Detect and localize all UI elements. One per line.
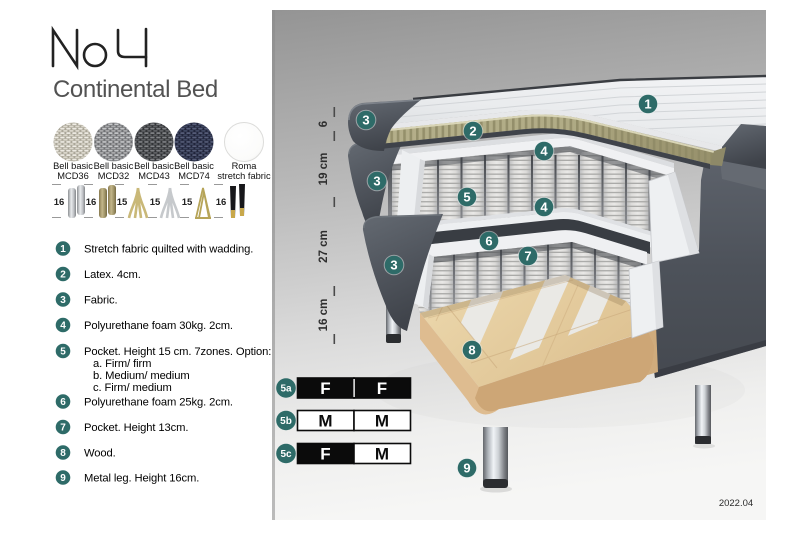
- svg-text:stretch fabric: stretch fabric: [217, 171, 271, 181]
- svg-text:Polyurethane foam 25kg. 2cm.: Polyurethane foam 25kg. 2cm.: [84, 397, 233, 409]
- svg-text:2: 2: [469, 124, 476, 139]
- svg-text:MCD74: MCD74: [178, 171, 210, 181]
- svg-text:5: 5: [463, 190, 470, 205]
- svg-text:9: 9: [463, 461, 470, 476]
- svg-text:M: M: [375, 445, 389, 464]
- svg-text:Metal leg. Height 16cm.: Metal leg. Height 16cm.: [84, 473, 199, 485]
- svg-text:Bell basic: Bell basic: [53, 161, 93, 171]
- svg-text:6: 6: [485, 234, 492, 249]
- svg-text:7: 7: [60, 423, 66, 434]
- svg-text:16: 16: [216, 197, 227, 208]
- svg-text:3: 3: [60, 295, 66, 306]
- svg-text:MCD32: MCD32: [98, 171, 130, 181]
- svg-text:1: 1: [644, 97, 651, 112]
- svg-text:9: 9: [60, 473, 66, 484]
- svg-text:c. Firm/ medium: c. Firm/ medium: [93, 382, 172, 394]
- svg-text:1: 1: [60, 244, 66, 255]
- svg-text:b. Medium/ medium: b. Medium/ medium: [93, 370, 190, 382]
- svg-text:MCD43: MCD43: [138, 171, 170, 181]
- svg-text:5a: 5a: [280, 384, 292, 395]
- svg-text:16: 16: [86, 197, 97, 208]
- svg-text:Pocket. Height 15 cm. 7zones.: Pocket. Height 15 cm. 7zones. Option:: [84, 346, 271, 358]
- svg-text:MCD36: MCD36: [57, 171, 89, 181]
- svg-text:4: 4: [540, 200, 548, 215]
- svg-text:4: 4: [60, 321, 66, 332]
- svg-text:2: 2: [60, 270, 66, 281]
- svg-text:5b: 5b: [280, 416, 292, 427]
- svg-text:4: 4: [540, 144, 548, 159]
- svg-text:5: 5: [60, 347, 66, 358]
- svg-text:Latex. 4cm.: Latex. 4cm.: [84, 269, 141, 281]
- svg-text:7: 7: [524, 249, 531, 264]
- svg-text:15: 15: [182, 197, 193, 208]
- svg-text:F: F: [377, 379, 387, 398]
- svg-text:27 cm: 27 cm: [318, 230, 330, 263]
- svg-text:8: 8: [468, 343, 475, 358]
- svg-text:M: M: [318, 412, 332, 431]
- svg-text:15: 15: [117, 197, 128, 208]
- svg-text:M: M: [375, 412, 389, 431]
- svg-text:3: 3: [362, 113, 369, 128]
- svg-text:Fabric.: Fabric.: [84, 295, 118, 307]
- svg-text:16 cm: 16 cm: [318, 299, 330, 332]
- svg-text:Bell basic: Bell basic: [174, 161, 214, 171]
- svg-text:6: 6: [318, 121, 330, 127]
- svg-text:Pocket. Height 13cm.: Pocket. Height 13cm.: [84, 422, 188, 434]
- svg-text:15: 15: [150, 197, 161, 208]
- svg-text:Wood.: Wood.: [84, 448, 116, 460]
- svg-text:8: 8: [60, 448, 66, 459]
- svg-text:Roma: Roma: [232, 161, 258, 171]
- svg-text:Bell basic: Bell basic: [94, 161, 134, 171]
- svg-text:3: 3: [373, 174, 380, 189]
- svg-text:19 cm: 19 cm: [318, 153, 330, 186]
- svg-text:16: 16: [54, 197, 65, 208]
- svg-text:F: F: [320, 379, 330, 398]
- svg-text:5c: 5c: [280, 449, 292, 460]
- svg-text:Polyurethane foam 30kg. 2cm.: Polyurethane foam 30kg. 2cm.: [84, 320, 233, 332]
- svg-text:a. Firm/ firm: a. Firm/ firm: [93, 358, 151, 370]
- svg-text:Stretch fabric quilted with wa: Stretch fabric quilted with wadding.: [84, 244, 253, 256]
- svg-text:F: F: [320, 445, 330, 464]
- svg-text:6: 6: [60, 397, 66, 408]
- svg-text:3: 3: [390, 258, 397, 273]
- svg-text:2022.04: 2022.04: [719, 498, 753, 509]
- svg-text:Continental Bed: Continental Bed: [53, 76, 218, 103]
- svg-text:Bell basic: Bell basic: [134, 161, 174, 171]
